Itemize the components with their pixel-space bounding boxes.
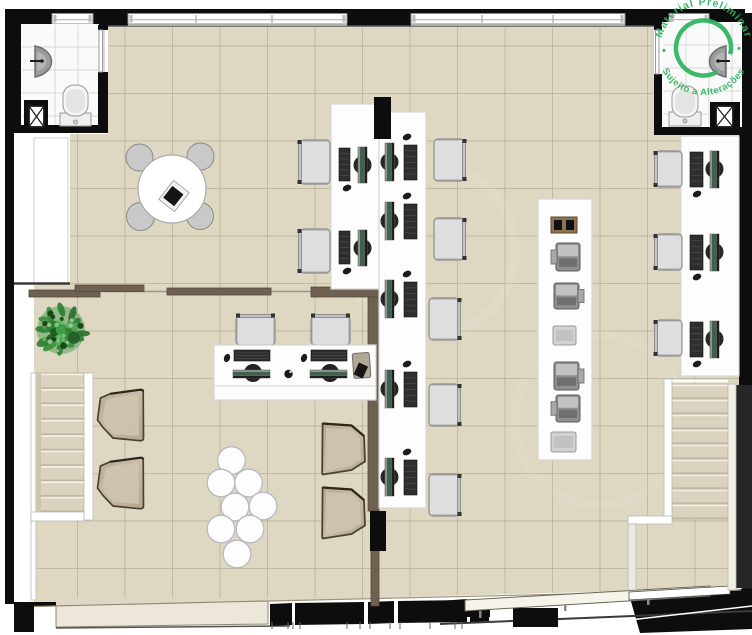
svg-text:•: • [662, 45, 666, 57]
svg-text:•: • [737, 43, 741, 55]
